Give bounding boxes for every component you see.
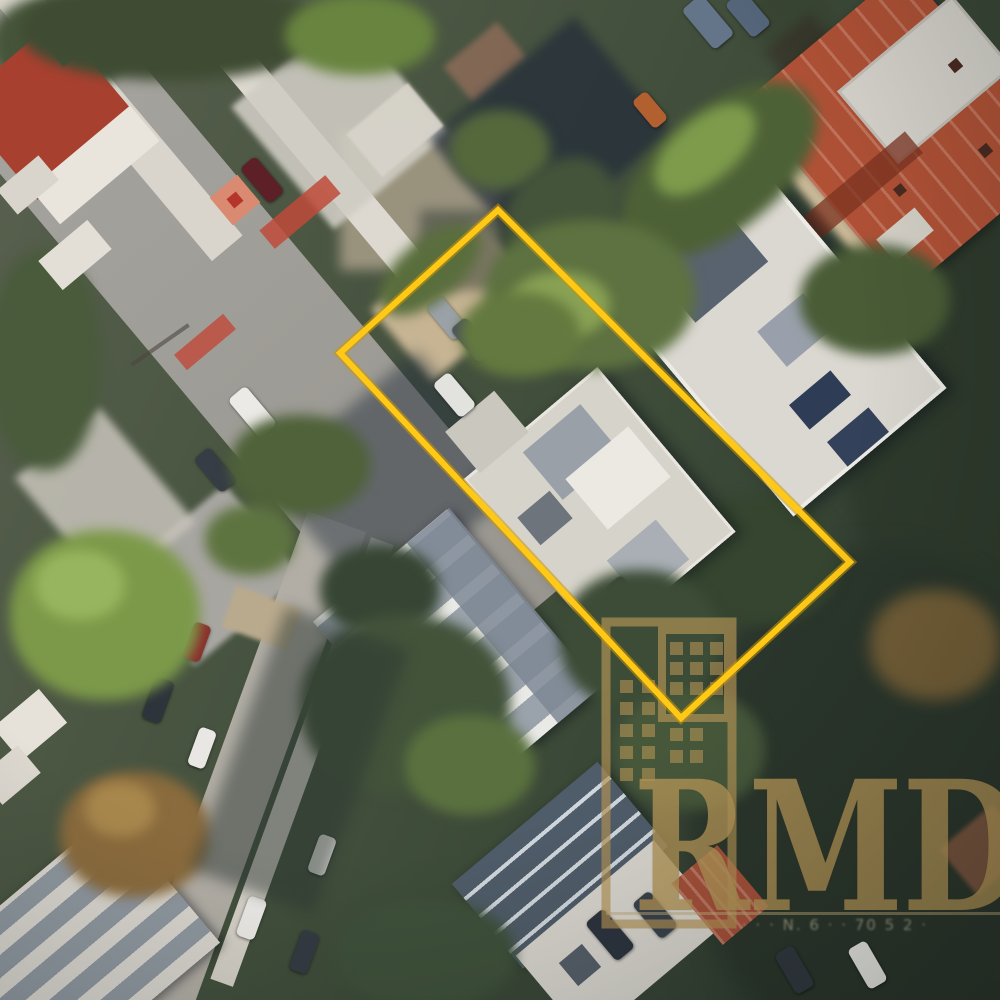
plot-boundary-line: [340, 210, 850, 718]
satellite-photo: RMD · · · N. 6 · · 70 5 2 ·: [0, 0, 1000, 1000]
plot-boundary-outline: [0, 0, 1000, 1000]
